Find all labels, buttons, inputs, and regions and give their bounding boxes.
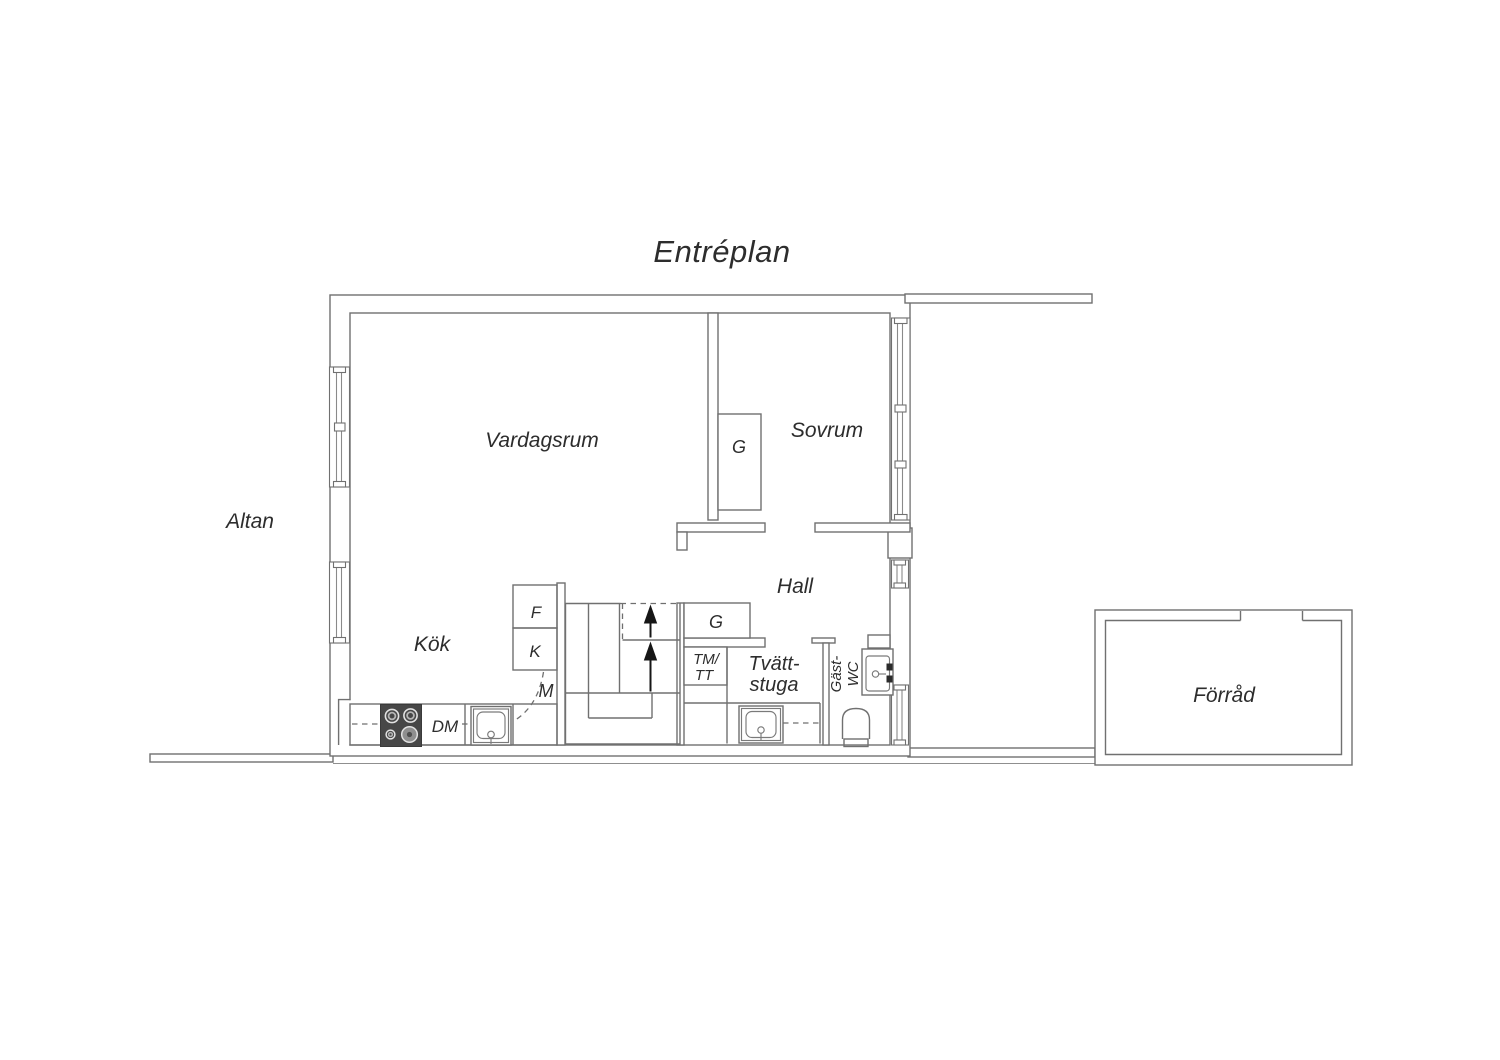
wardrobe-sovrum: G	[718, 414, 761, 510]
window-hall-right-small	[892, 560, 909, 588]
room-label-sovrum: Sovrum	[791, 419, 863, 442]
room-label-tvattstuga: Tvätt- stuga	[748, 653, 799, 696]
window-sovrum-right	[892, 318, 911, 520]
wardrobe-sovrum-label: G	[732, 437, 746, 457]
window-wc-right	[892, 685, 909, 745]
room-label-kok: Kök	[414, 633, 452, 656]
dishwasher-label: DM	[432, 717, 459, 736]
boundary-wall	[905, 294, 1092, 303]
wall-wc-door-cap	[812, 638, 835, 643]
wall-vardagsrum-sovrum	[708, 313, 718, 520]
wardrobe-hall-label: G	[709, 612, 723, 632]
svg-text:Gäst-: Gäst-	[828, 656, 845, 693]
freezer-label: K	[529, 642, 541, 661]
plan-title: Entréplan	[653, 234, 790, 269]
wall-wc-top-piece	[868, 635, 890, 648]
fridge-label: F	[531, 603, 543, 622]
micro-label: M	[539, 681, 554, 701]
wc-sink	[862, 649, 893, 695]
svg-text:TM/: TM/	[693, 651, 721, 668]
wall-laundry-top	[684, 638, 765, 647]
svg-text:WC: WC	[845, 661, 862, 686]
window-kitchen-left-lower	[330, 562, 350, 643]
wall-sovrum-hall-right	[815, 523, 910, 532]
stove	[381, 705, 422, 747]
yard-wall	[908, 748, 1095, 757]
floorplan-page: Entréplan	[0, 0, 1500, 1060]
svg-text:TT: TT	[695, 667, 715, 684]
window-living-left-upper	[330, 367, 350, 487]
room-label-hall: Hall	[777, 575, 815, 598]
wardrobe-hall: G	[684, 603, 750, 638]
svg-text:Tvätt-: Tvätt-	[748, 653, 799, 675]
laundry-sink	[739, 706, 783, 743]
floorplan-canvas: Entréplan	[0, 0, 1500, 1060]
wall-kitchen-stairs	[557, 583, 565, 745]
room-label-altan: Altan	[224, 510, 274, 533]
altan-deck-edge	[150, 754, 333, 762]
room-label-forrad: Förråd	[1193, 684, 1256, 707]
room-label-vardagsrum: Vardagsrum	[485, 429, 599, 452]
svg-text:stuga: stuga	[750, 674, 799, 696]
kitchen-sink	[471, 707, 511, 746]
